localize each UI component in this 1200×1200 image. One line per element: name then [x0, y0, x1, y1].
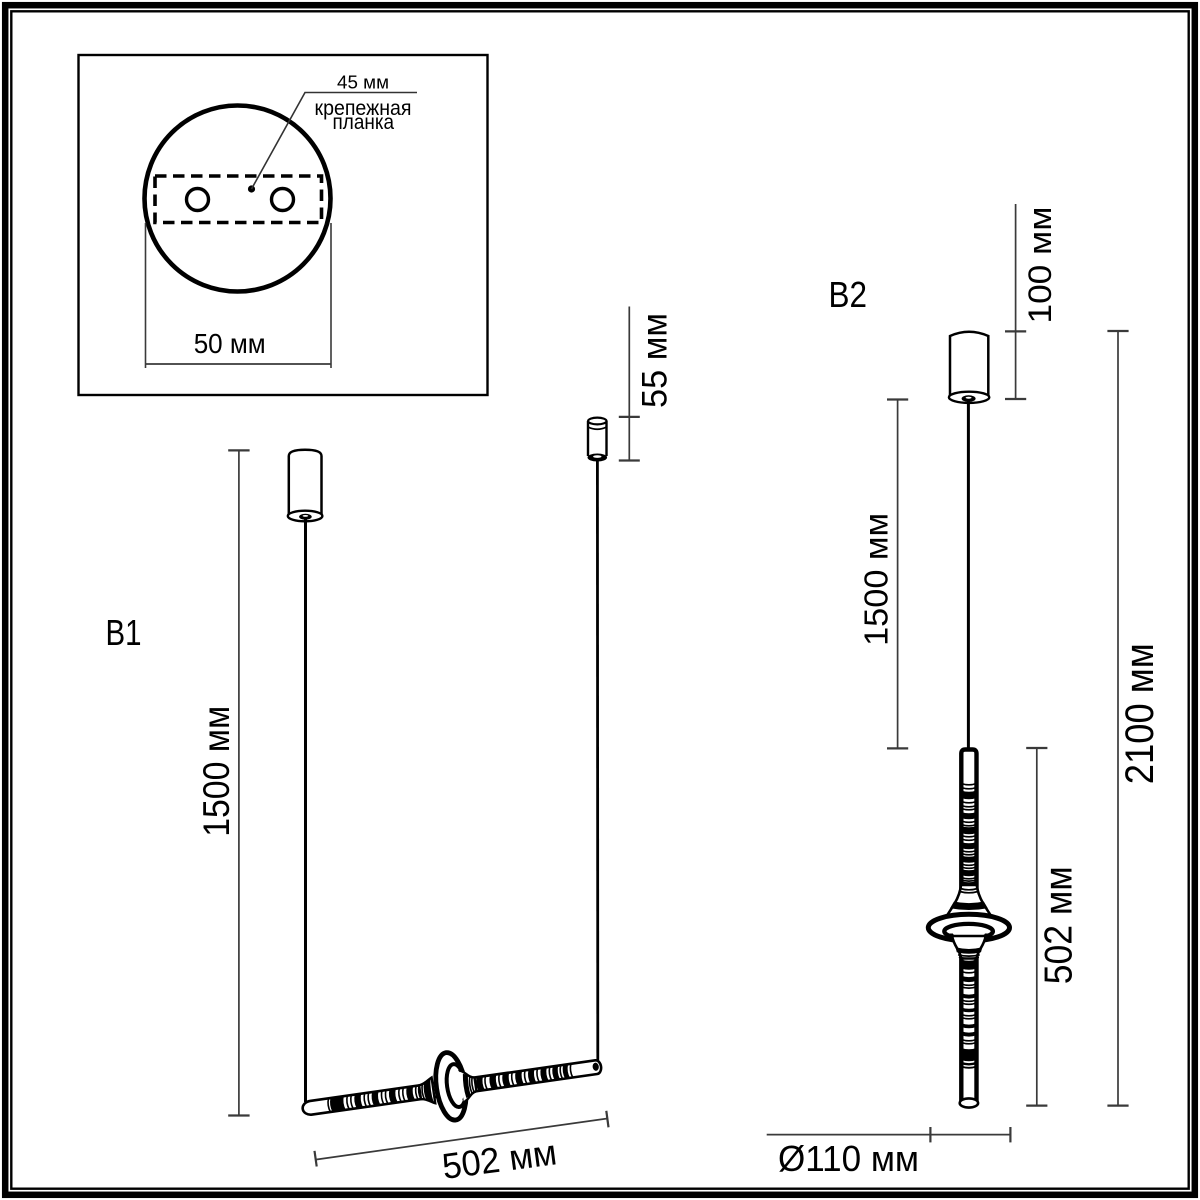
svg-text:50 мм: 50 мм	[194, 328, 266, 359]
svg-text:Ø110 мм: Ø110 мм	[778, 1138, 919, 1179]
svg-text:B2: B2	[829, 274, 868, 315]
svg-text:45 мм: 45 мм	[337, 72, 389, 92]
svg-text:1500 мм: 1500 мм	[196, 706, 237, 837]
svg-text:100 мм: 100 мм	[1022, 207, 1058, 324]
svg-text:2100 мм: 2100 мм	[1118, 643, 1162, 784]
svg-text:планка: планка	[333, 111, 395, 134]
svg-text:1500 мм: 1500 мм	[858, 513, 895, 646]
svg-text:55 мм: 55 мм	[636, 313, 675, 408]
svg-text:B1: B1	[106, 612, 142, 653]
svg-text:502 мм: 502 мм	[1038, 866, 1081, 984]
